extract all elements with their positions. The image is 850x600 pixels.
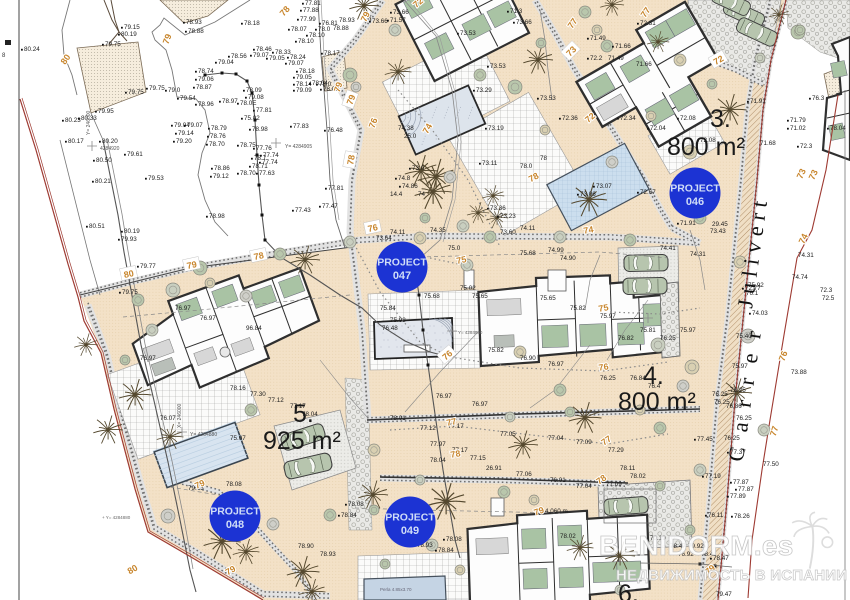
svg-text:72.36: 72.36 — [562, 115, 578, 122]
svg-text:75.97: 75.97 — [600, 313, 616, 320]
svg-text:74: 74 — [583, 224, 595, 236]
svg-text:78.08: 78.08 — [348, 501, 364, 508]
svg-text:77.05: 77.05 — [500, 431, 516, 438]
svg-text:5.: 5. — [293, 400, 314, 428]
svg-text:72.3: 72.3 — [800, 143, 813, 150]
svg-text:Y= 246000: Y= 246000 — [86, 110, 92, 135]
svg-text:74: 74 — [418, 191, 426, 198]
svg-text:77.19: 77.19 — [705, 473, 721, 480]
svg-text:78.02: 78.02 — [560, 533, 576, 540]
svg-text:76.25: 76.25 — [660, 335, 676, 342]
svg-text:74.31: 74.31 — [690, 251, 706, 258]
svg-text:79.09: 79.09 — [296, 87, 312, 94]
svg-text:78.18: 78.18 — [244, 20, 260, 27]
svg-text:75: 75 — [598, 302, 610, 314]
svg-text:73.66: 73.66 — [372, 18, 388, 25]
svg-text:74.74: 74.74 — [792, 274, 808, 281]
svg-text:80.19: 80.19 — [124, 228, 140, 235]
svg-text:76.25: 76.25 — [712, 391, 728, 398]
svg-text:26.91: 26.91 — [486, 465, 502, 472]
svg-text:73.23: 73.23 — [500, 213, 516, 220]
svg-text:80.19: 80.19 — [121, 31, 137, 38]
svg-text:71.79: 71.79 — [790, 117, 806, 124]
svg-text:71.66: 71.66 — [636, 61, 652, 68]
svg-text:71.02: 71.02 — [790, 125, 806, 132]
svg-text:75: 75 — [455, 254, 467, 266]
svg-text:77.47: 77.47 — [322, 203, 338, 210]
svg-text:78: 78 — [450, 448, 462, 460]
svg-text:73.36: 73.36 — [490, 205, 506, 212]
svg-text:78.88: 78.88 — [188, 28, 204, 35]
svg-text:71.66: 71.66 — [615, 43, 631, 50]
svg-text:76.07: 76.07 — [160, 415, 176, 422]
svg-text:73.06: 73.06 — [580, 191, 596, 198]
svg-text:76.97: 76.97 — [175, 305, 191, 312]
svg-text:14.4: 14.4 — [390, 191, 403, 198]
svg-text:77.04: 77.04 — [576, 483, 592, 490]
svg-text:79.75: 79.75 — [149, 85, 165, 92]
svg-text:78.84: 78.84 — [341, 512, 357, 519]
svg-text:78.04: 78.04 — [430, 457, 446, 464]
svg-text:PROJECT: PROJECT — [670, 183, 720, 195]
svg-text:79.07: 79.07 — [187, 122, 203, 129]
svg-text:77.81: 77.81 — [256, 107, 272, 114]
svg-text:73.60: 73.60 — [500, 229, 516, 236]
svg-text:73.11: 73.11 — [482, 160, 498, 167]
svg-text:PROJECT: PROJECT — [377, 257, 427, 269]
svg-text:76.90: 76.90 — [520, 355, 536, 362]
svg-text:77.81: 77.81 — [305, 0, 321, 7]
svg-text:73.29: 73.29 — [476, 87, 492, 94]
svg-text:78.04: 78.04 — [830, 125, 846, 132]
svg-text:72.5: 72.5 — [822, 295, 835, 302]
svg-text:78: 78 — [345, 154, 357, 166]
svg-text:77.43: 77.43 — [295, 207, 311, 214]
svg-text:78.87: 78.87 — [196, 84, 212, 91]
svg-text:77.87: 77.87 — [738, 486, 754, 493]
svg-text:71.3: 71.3 — [510, 8, 523, 15]
svg-text:78.11: 78.11 — [620, 465, 636, 472]
svg-text:71.91: 71.91 — [750, 98, 766, 105]
svg-text:79.14: 79.14 — [178, 130, 194, 137]
svg-text:79.95: 79.95 — [98, 108, 114, 115]
svg-text:79.53: 79.53 — [148, 175, 164, 182]
svg-text:77.30: 77.30 — [250, 391, 266, 398]
svg-text:925 m²: 925 m² — [263, 427, 341, 455]
svg-text:4.060 m: 4.060 m — [545, 508, 568, 515]
svg-text:77.09: 77.09 — [576, 439, 592, 446]
svg-text:77.29: 77.29 — [608, 447, 624, 454]
svg-text:79.05: 79.05 — [296, 74, 312, 81]
svg-text:78.0E: 78.0E — [240, 100, 256, 107]
svg-text:78.84: 78.84 — [438, 547, 454, 554]
svg-text:80.51: 80.51 — [89, 223, 105, 230]
svg-text:78.96: 78.96 — [198, 101, 214, 108]
svg-text:Y= 4284905: Y= 4284905 — [285, 144, 312, 150]
svg-text:78.09: 78.09 — [246, 87, 262, 94]
svg-text:71.49: 71.49 — [608, 55, 624, 62]
svg-text:79.07: 79.07 — [288, 60, 304, 67]
svg-text:79.05: 79.05 — [269, 55, 285, 62]
svg-text:78.04: 78.04 — [312, 80, 328, 87]
svg-text:76.97: 76.97 — [548, 361, 564, 368]
svg-text:73.88: 73.88 — [791, 369, 807, 376]
svg-text:78.93: 78.93 — [320, 551, 336, 558]
svg-text:77.04: 77.04 — [548, 435, 564, 442]
svg-text:74.11: 74.11 — [520, 225, 536, 232]
svg-text:79.75: 79.75 — [122, 289, 138, 296]
svg-text:74.31: 74.31 — [798, 252, 814, 259]
svg-text:77: 77 — [445, 416, 457, 428]
svg-text:78: 78 — [540, 155, 548, 162]
svg-text:Perla 4.85x3.70: Perla 4.85x3.70 — [380, 587, 412, 592]
svg-text:75.82: 75.82 — [570, 305, 586, 312]
svg-text:76.11: 76.11 — [708, 512, 724, 519]
svg-text:80.50: 80.50 — [96, 157, 112, 164]
svg-text:77.45: 77.45 — [697, 436, 713, 443]
svg-text:78.93: 78.93 — [339, 17, 355, 24]
svg-text:79.75: 79.75 — [128, 89, 144, 96]
svg-text:78.02: 78.02 — [630, 473, 646, 480]
svg-text:77.83: 77.83 — [293, 123, 309, 130]
svg-text:74.38: 74.38 — [398, 125, 414, 132]
svg-text:79.04: 79.04 — [218, 59, 234, 66]
svg-text:76.97: 76.97 — [200, 315, 216, 322]
svg-text:79.0: 79.0 — [168, 87, 181, 94]
svg-text:77.12: 77.12 — [420, 425, 436, 432]
svg-text:75.68: 75.68 — [520, 250, 536, 257]
svg-text:73.53: 73.53 — [460, 30, 476, 37]
svg-text:76.97: 76.97 — [472, 401, 488, 408]
svg-text:74.86: 74.86 — [402, 183, 418, 190]
svg-text:74.8: 74.8 — [398, 175, 411, 182]
svg-text:76.97: 76.97 — [436, 393, 452, 400]
svg-text:77.50: 77.50 — [763, 461, 779, 468]
svg-text:78.74: 78.74 — [198, 68, 214, 75]
svg-text:73.53: 73.53 — [490, 63, 506, 70]
svg-text:77.12: 77.12 — [268, 397, 284, 404]
svg-text:71.68: 71.68 — [760, 140, 776, 147]
svg-text:78.98: 78.98 — [252, 126, 268, 133]
svg-text:77.76: 77.76 — [256, 145, 272, 152]
svg-text:72.2: 72.2 — [590, 55, 603, 62]
svg-text:78.16: 78.16 — [230, 385, 246, 392]
svg-text:3.: 3. — [710, 105, 731, 133]
svg-text:29.45: 29.45 — [712, 221, 728, 228]
svg-text:PROJECT: PROJECT — [385, 512, 435, 524]
svg-text:73.66: 73.66 — [516, 19, 532, 26]
svg-text:78.98: 78.98 — [209, 213, 225, 220]
svg-text:77.88: 77.88 — [303, 7, 319, 14]
svg-text:048: 048 — [226, 519, 244, 531]
svg-text:78.07: 78.07 — [291, 26, 307, 33]
svg-text:75.98: 75.98 — [390, 317, 406, 324]
svg-text:78.93: 78.93 — [186, 19, 202, 26]
svg-text:78.76: 78.76 — [210, 133, 226, 140]
svg-text:79.54: 79.54 — [180, 95, 196, 102]
svg-text:75.84: 75.84 — [380, 305, 396, 312]
svg-text:76.3: 76.3 — [812, 95, 825, 102]
svg-text:78.17: 78.17 — [324, 50, 340, 57]
svg-text:79.15: 79.15 — [124, 24, 140, 31]
svg-text:72.67: 72.67 — [640, 189, 656, 196]
svg-text:74.35: 74.35 — [430, 227, 446, 234]
svg-text:80: 80 — [123, 268, 135, 280]
svg-text:75.81: 75.81 — [640, 327, 656, 334]
svg-text:80.24: 80.24 — [24, 46, 40, 53]
svg-text:НЕДВИЖИМОСТЬ В ИСПАНИИ: НЕДВИЖИМОСТЬ В ИСПАНИИ — [616, 567, 847, 584]
svg-text:76.48: 76.48 — [382, 325, 398, 332]
svg-text:Y= 4284880: Y= 4284880 — [458, 330, 483, 335]
svg-text:76.97: 76.97 — [140, 355, 156, 362]
svg-text:78.86: 78.86 — [214, 165, 230, 172]
svg-text:74.11: 74.11 — [390, 229, 406, 236]
svg-text:74.41: 74.41 — [660, 245, 676, 252]
svg-text:96.84: 96.84 — [246, 325, 262, 332]
svg-text:77.87: 77.87 — [733, 479, 749, 486]
svg-text:75.68: 75.68 — [424, 293, 440, 300]
svg-text:77.89: 77.89 — [730, 493, 746, 500]
svg-text:78.26: 78.26 — [734, 513, 750, 520]
svg-text:76.25: 76.25 — [600, 375, 616, 382]
svg-text:77.97: 77.97 — [430, 441, 446, 448]
svg-text:76.82: 76.82 — [618, 335, 634, 342]
svg-text:047: 047 — [393, 270, 411, 282]
svg-text:79.47: 79.47 — [716, 591, 732, 598]
svg-text:4284920: 4284920 — [100, 146, 120, 152]
svg-text:75.97: 75.97 — [680, 327, 696, 334]
svg-text:77.06: 77.06 — [516, 471, 532, 478]
svg-text:72.31: 72.31 — [640, 20, 656, 27]
svg-text:80.17: 80.17 — [68, 138, 84, 145]
svg-text:PROJECT: PROJECT — [210, 506, 260, 518]
svg-text:80.21: 80.21 — [95, 178, 111, 185]
svg-text:78: 78 — [253, 250, 265, 262]
svg-text:78.70: 78.70 — [209, 141, 225, 148]
svg-text:72.34: 72.34 — [620, 115, 636, 122]
svg-text:046: 046 — [686, 196, 704, 208]
svg-text:73.07: 73.07 — [596, 183, 612, 190]
svg-text:78.71: 78.71 — [252, 163, 268, 170]
svg-text:80.20: 80.20 — [102, 138, 118, 145]
svg-text:77.63: 77.63 — [259, 170, 275, 177]
svg-text:78.10: 78.10 — [298, 38, 314, 45]
svg-text:79.93: 79.93 — [121, 236, 137, 243]
svg-text:78.7: 78.7 — [254, 155, 267, 162]
svg-text:71.91: 71.91 — [680, 220, 696, 227]
svg-text:73.43: 73.43 — [710, 228, 726, 235]
svg-text:73.19: 73.19 — [488, 125, 504, 132]
svg-text:79: 79 — [186, 259, 198, 271]
svg-text:78.08: 78.08 — [446, 536, 462, 543]
svg-text:79.61: 79.61 — [127, 151, 143, 158]
svg-text:76.48: 76.48 — [327, 127, 343, 134]
svg-text:78.79: 78.79 — [211, 125, 227, 132]
svg-text:75.82: 75.82 — [488, 347, 504, 354]
svg-text:74.90: 74.90 — [560, 255, 576, 262]
svg-text:78.97: 78.97 — [222, 98, 238, 105]
svg-text:75.02: 75.02 — [460, 285, 476, 292]
svg-text:73.66: 73.66 — [393, 9, 409, 16]
svg-text:77.81: 77.81 — [328, 185, 344, 192]
svg-text:X= 246000: X= 246000 — [177, 403, 183, 428]
svg-text:25.0: 25.0 — [404, 133, 417, 140]
svg-text:79.77: 79.77 — [140, 263, 156, 270]
svg-text:79.20: 79.20 — [176, 138, 192, 145]
svg-text:800 m²: 800 m² — [667, 133, 745, 161]
svg-text:75.65: 75.65 — [472, 293, 488, 300]
svg-text:71.49: 71.49 — [590, 35, 606, 42]
svg-text:79.06: 79.06 — [198, 76, 214, 83]
svg-text:78.08: 78.08 — [226, 481, 242, 488]
svg-text:78.0: 78.0 — [520, 163, 533, 170]
svg-text:74.03: 74.03 — [752, 310, 768, 317]
svg-text:75.07: 75.07 — [230, 435, 246, 442]
svg-text:+ Y= 4284880: + Y= 4284880 — [102, 515, 131, 520]
svg-text:77.09: 77.09 — [606, 481, 622, 488]
svg-text:71.57: 71.57 — [390, 17, 406, 24]
svg-text:049: 049 — [401, 525, 419, 537]
svg-text:75.65: 75.65 — [540, 295, 556, 302]
svg-text:74.99: 74.99 — [548, 247, 564, 254]
svg-text:79.12: 79.12 — [213, 173, 229, 180]
svg-text:Y= 4284880: Y= 4284880 — [190, 432, 217, 438]
svg-text:800 m²: 800 m² — [618, 388, 696, 416]
svg-text:76.81: 76.81 — [322, 20, 338, 27]
svg-text:BENIDORM.es: BENIDORM.es — [599, 530, 794, 561]
svg-text:73.64: 73.64 — [376, 235, 392, 242]
svg-text:78.90: 78.90 — [298, 543, 314, 550]
svg-text:77.15: 77.15 — [470, 455, 486, 462]
svg-text:79.75: 79.75 — [105, 41, 121, 48]
svg-text:78.01: 78.01 — [390, 415, 406, 422]
svg-text:76.01: 76.01 — [550, 477, 566, 484]
svg-text:72.04: 72.04 — [650, 125, 666, 132]
svg-text:76: 76 — [598, 361, 609, 372]
svg-text:73.53: 73.53 — [540, 95, 556, 102]
svg-text:4.: 4. — [643, 362, 664, 390]
svg-text:77.99: 77.99 — [300, 16, 316, 23]
svg-text:75.0: 75.0 — [448, 245, 461, 252]
svg-text:72.3: 72.3 — [820, 287, 833, 294]
svg-text:76: 76 — [367, 222, 379, 234]
svg-text:72.08: 72.08 — [680, 115, 696, 122]
svg-text:75.02: 75.02 — [244, 115, 260, 122]
svg-text:78.70: 78.70 — [240, 170, 256, 177]
svg-text:73.0: 73.0 — [412, 165, 425, 172]
